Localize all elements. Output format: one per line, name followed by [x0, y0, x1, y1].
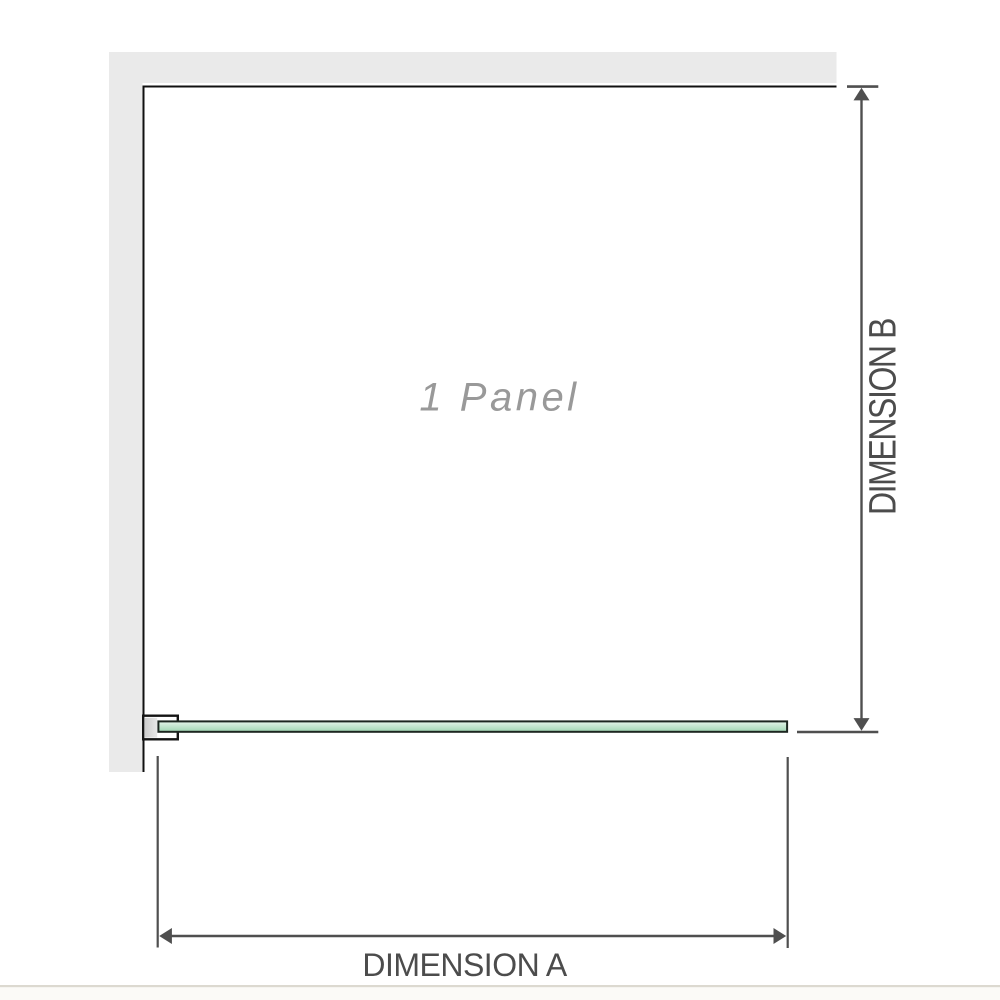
svg-text:1 Panel: 1 Panel: [419, 376, 579, 420]
svg-text:DIMENSION B: DIMENSION B: [862, 319, 904, 515]
svg-text:DIMENSION A: DIMENSION A: [362, 947, 567, 983]
